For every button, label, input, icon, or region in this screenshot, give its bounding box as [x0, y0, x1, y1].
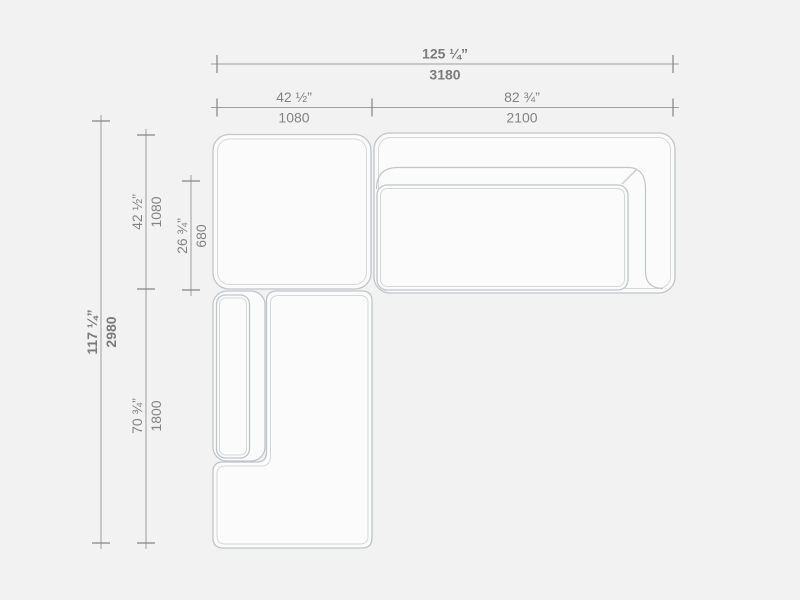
dim-upper-depth-inches: 42 ½”: [129, 194, 145, 230]
dim-left-width-inches: 42 ½”: [276, 89, 312, 105]
dim-chaise-length-mm: 1800: [148, 400, 164, 431]
dim-upper-depth-mm: 1080: [148, 196, 164, 227]
dim-cushion-depth-inches: 26 ¾”: [174, 218, 190, 254]
corner-module: [213, 135, 371, 290]
dim-overall-width-inches: 125 ¼”: [422, 46, 468, 62]
sofa-dimension-drawing: 125 ¼” 3180 42 ½” 1080 82 ¾” 2100 117 ¼”…: [0, 0, 800, 600]
dim-overall-width: 125 ¼” 3180: [211, 46, 679, 83]
dim-right-width-mm: 2100: [506, 110, 537, 126]
dim-overall-depth-inches: 117 ¼”: [84, 309, 100, 354]
dim-overall-width-mm: 3180: [429, 67, 460, 83]
dim-section-widths: 42 ½” 1080 82 ¾” 2100: [211, 89, 679, 126]
dim-section-depths: 42 ½” 1080 70 ¾” 1800: [129, 129, 164, 549]
sofa-plan-view: [213, 133, 675, 548]
dim-overall-depth-mm: 2980: [103, 316, 119, 347]
dim-left-width-mm: 1080: [278, 110, 309, 126]
chaise-module: [213, 291, 372, 548]
right-sofa-module: [374, 133, 675, 293]
right-sofa-seat-cushion: [377, 185, 628, 290]
dim-chaise-length-inches: 70 ¾”: [129, 398, 145, 434]
dim-overall-depth: 117 ¼” 2980: [84, 115, 119, 549]
dim-right-width-inches: 82 ¾”: [504, 89, 540, 105]
chaise-arm-cushion: [217, 295, 250, 458]
corner-module-outline: [213, 135, 371, 290]
dim-cushion-depth: 26 ¾” 680: [174, 175, 209, 296]
dim-cushion-depth-mm: 680: [193, 224, 209, 248]
